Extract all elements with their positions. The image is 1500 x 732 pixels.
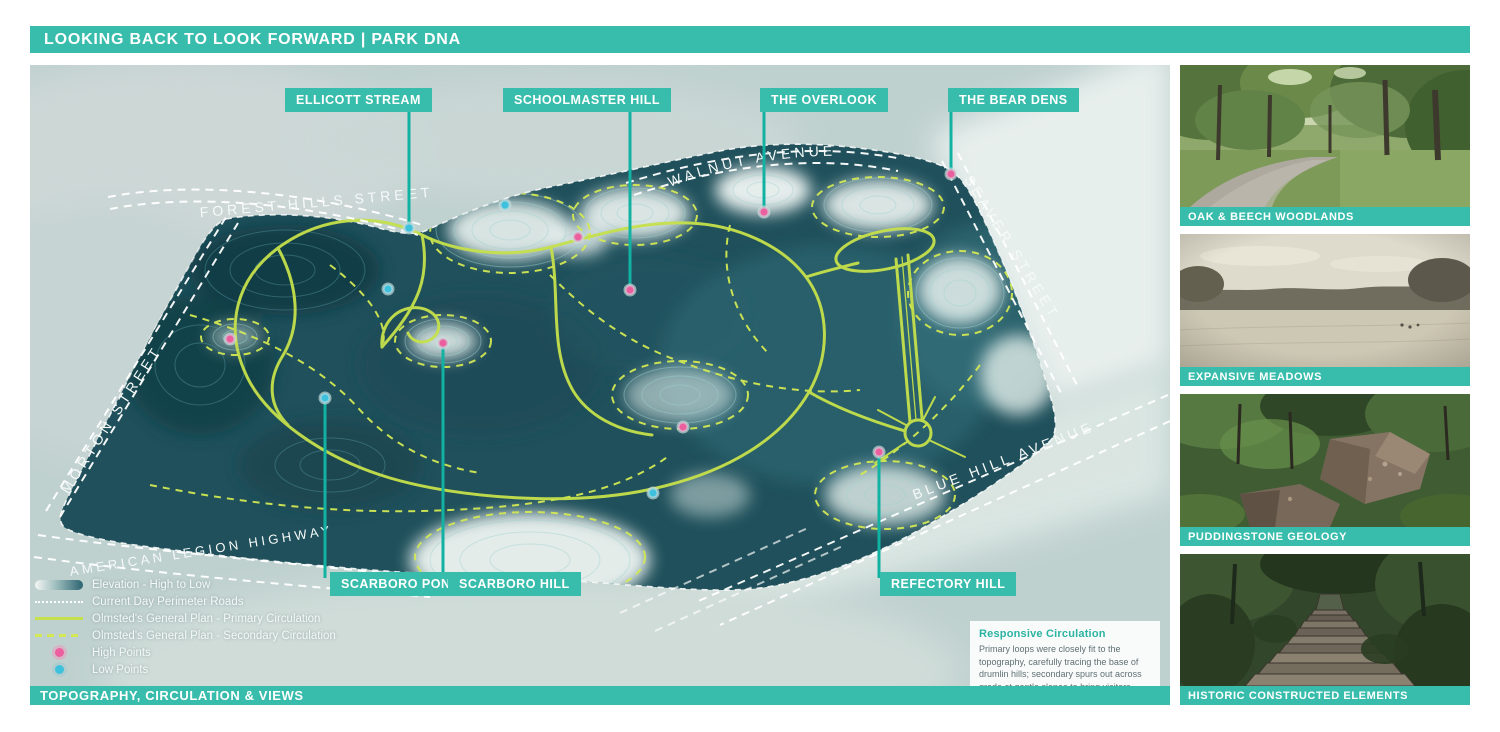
note-title: Responsive Circulation (979, 628, 1151, 640)
map-label-refectory-hill: REFECTORY HILL (880, 572, 1016, 596)
map-section-banner: TOPOGRAPHY, CIRCULATION & VIEWS (30, 686, 1170, 705)
photo-puddingstone-geology (1180, 394, 1470, 527)
photo-sidebar: OAK & BEECH WOODLANDS (1180, 65, 1470, 705)
dashed-yellow-swatch (35, 634, 83, 637)
legend-item-perimeter-roads: Current Day Perimeter Roads (34, 593, 336, 610)
page-title: LOOKING BACK TO LOOK FORWARD | PARK DNA (44, 31, 461, 49)
caption-oak-beech: OAK & BEECH WOODLANDS (1180, 207, 1470, 226)
map-label-the-bear-dens: THE BEAR DENS (948, 88, 1079, 112)
caption-puddingstone-geology: PUDDINGSTONE GEOLOGY (1180, 527, 1470, 546)
legend-item-high-points: High Points (34, 644, 336, 661)
pink-dot-swatch (55, 648, 64, 657)
map-label-schoolmaster-hill: SCHOOLMASTER HILL (503, 88, 671, 112)
map-label-ellicott-stream: ELLICOTT STREAM (285, 88, 432, 112)
caption-historic-constructed-elements: HISTORIC CONSTRUCTED ELEMENTS (1180, 686, 1470, 705)
legend-item-elevation: Elevation - High to Low (34, 576, 336, 593)
photo-card-puddingstone-geology: PUDDINGSTONE GEOLOGY (1180, 394, 1470, 546)
legend-item-secondary-circulation: Olmsted's General Plan - Secondary Circu… (34, 627, 336, 644)
map-section-title: TOPOGRAPHY, CIRCULATION & VIEWS (40, 688, 304, 703)
photo-historic-constructed-elements (1180, 554, 1470, 686)
photo-card-expansive-meadows: EXPANSIVE MEADOWS (1180, 234, 1470, 386)
legend-item-low-points: Low Points (34, 661, 336, 678)
cyan-dot-swatch (55, 665, 64, 674)
map-legend: Elevation - High to Low Current Day Peri… (34, 576, 336, 678)
map-label-the-overlook: THE OVERLOOK (760, 88, 888, 112)
page-title-banner: LOOKING BACK TO LOOK FORWARD | PARK DNA (30, 26, 1470, 53)
solid-yellow-swatch (35, 617, 83, 620)
elevation-gradient-swatch (35, 580, 83, 590)
park-map-panel: FOREST HILLS STREET WALNUT AVENUE MORTON… (30, 65, 1170, 705)
caption-expansive-meadows: EXPANSIVE MEADOWS (1180, 367, 1470, 386)
photo-card-oak-beech-woodlands: OAK & BEECH WOODLANDS (1180, 65, 1470, 226)
dotted-line-swatch (35, 601, 83, 603)
photo-expansive-meadows (1180, 234, 1470, 367)
presentation-board: LOOKING BACK TO LOOK FORWARD | PARK DNA (0, 0, 1500, 732)
map-label-scarboro-hill: SCARBORO HILL (448, 572, 581, 596)
photo-card-historic-constructed-elements: HISTORIC CONSTRUCTED ELEMENTS (1180, 554, 1470, 705)
photo-oak-beech-woodlands (1180, 65, 1470, 207)
legend-item-primary-circulation: Olmsted's General Plan - Primary Circula… (34, 610, 336, 627)
